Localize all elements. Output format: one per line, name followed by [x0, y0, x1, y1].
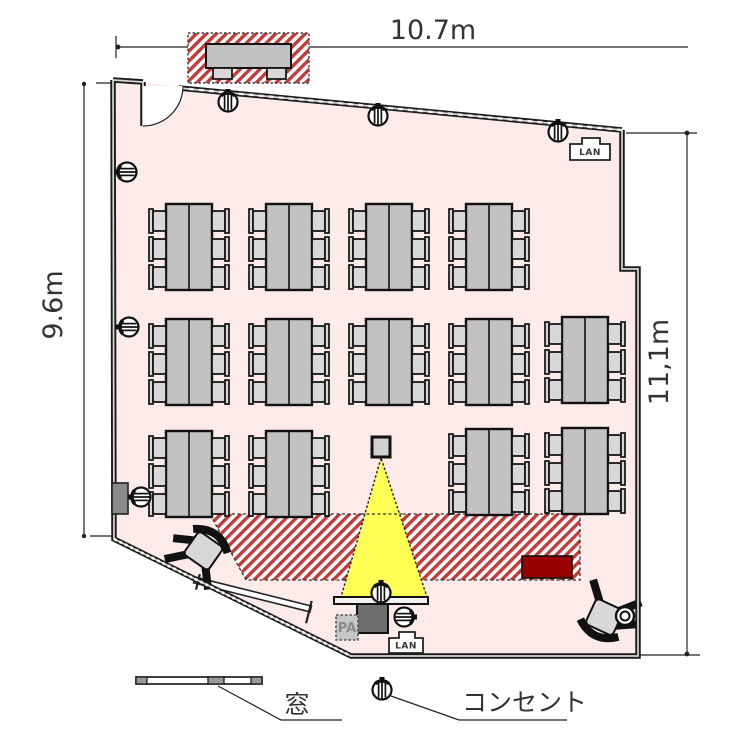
reception-chair — [267, 68, 286, 79]
lan-label-top: LAN — [579, 148, 601, 158]
window-label: 窓 — [284, 690, 309, 719]
table-group — [149, 204, 229, 290]
floor-plan-svg: 10.7m 9.6m 11,1m — [0, 0, 750, 750]
table-group — [349, 319, 429, 405]
outlet-symbol — [373, 677, 392, 700]
legend-outlet: コンセント — [391, 688, 587, 720]
outlet-label: コンセント — [462, 688, 587, 717]
projector — [357, 604, 388, 633]
stool — [616, 607, 634, 625]
table-group — [449, 204, 529, 290]
table-group — [349, 204, 429, 290]
table-group — [149, 431, 229, 517]
dimension-label-right: 11,1m — [644, 319, 675, 405]
table-group — [249, 319, 329, 405]
lan-label-bottom: LAN — [395, 642, 417, 652]
table-group — [249, 204, 329, 290]
table-group — [149, 319, 229, 405]
table-group — [545, 317, 625, 403]
reception-table — [206, 44, 291, 68]
screen — [372, 437, 390, 457]
table-group — [545, 428, 625, 514]
reception-chair — [213, 68, 232, 79]
window-symbol — [136, 677, 262, 684]
floor-plan-canvas: 10.7m 9.6m 11,1m — [0, 0, 750, 750]
dimension-label-left: 9.6m — [38, 270, 69, 339]
reception-desk — [188, 33, 309, 83]
pa-box: PA — [336, 615, 358, 640]
podium — [522, 556, 572, 578]
table-group — [449, 429, 529, 515]
pa-label: PA — [338, 621, 356, 636]
dimension-label-top: 10.7m — [390, 15, 476, 46]
table-group — [249, 431, 329, 517]
window-leader-line — [218, 686, 342, 720]
wall-equipment-box — [112, 483, 128, 514]
table-group — [449, 319, 529, 405]
legend-window: 窓 — [136, 677, 342, 720]
